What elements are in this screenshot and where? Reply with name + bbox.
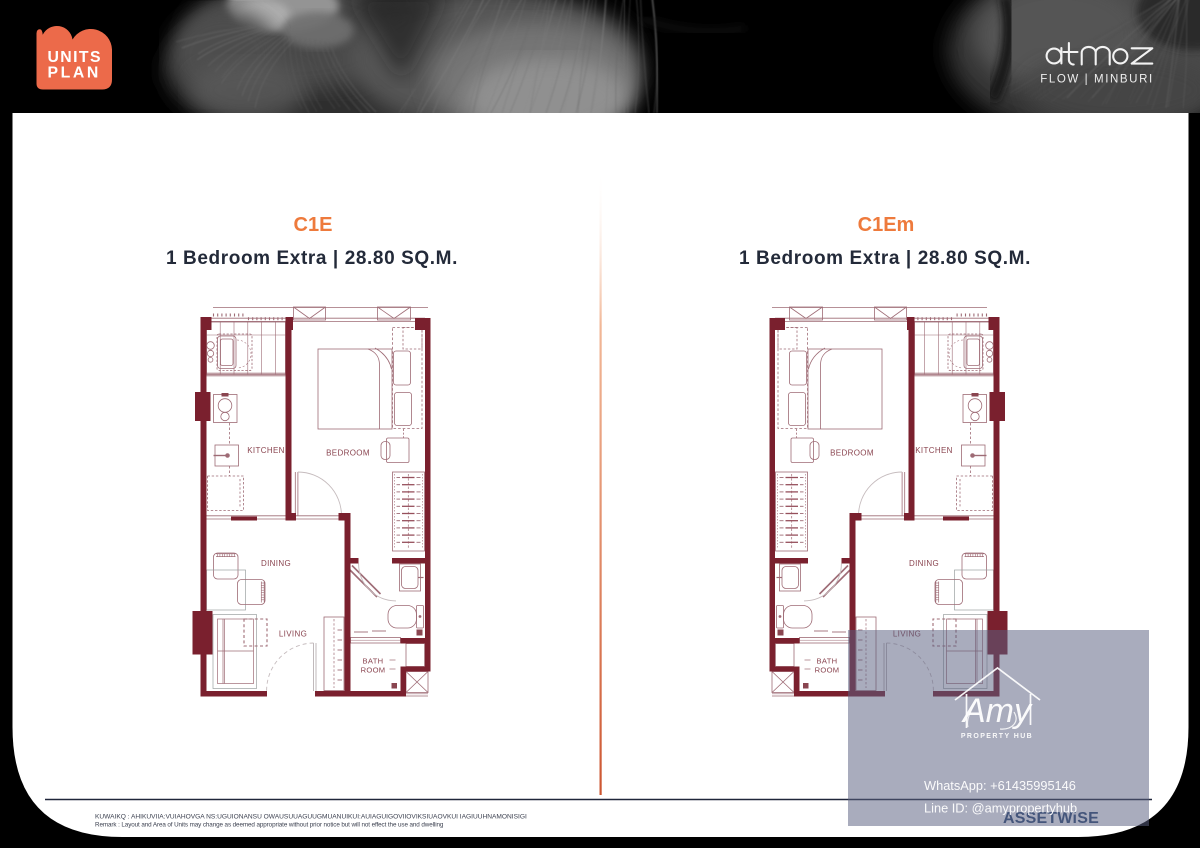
svg-text:BEDROOM: BEDROOM [830, 449, 874, 458]
svg-text:Amy: Amy [961, 692, 1033, 730]
svg-text:KITCHEN: KITCHEN [915, 446, 953, 455]
svg-text:C1E: C1E [294, 214, 333, 236]
svg-text:DINING: DINING [909, 559, 939, 568]
svg-text:C1Em: C1Em [858, 214, 915, 236]
svg-text:DINING: DINING [261, 559, 291, 568]
svg-text:BATH: BATH [817, 657, 838, 666]
svg-text:1 Bedroom Extra | 28.80 SQ.M.: 1 Bedroom Extra | 28.80 SQ.M. [166, 248, 458, 269]
svg-text:BEDROOM: BEDROOM [326, 449, 370, 458]
svg-text:Remark : Layout and Area of Un: Remark : Layout and Area of Units may ch… [95, 822, 444, 829]
svg-text:KUWAIKQ : AHIKUVIIA:VUIAHOVGA: KUWAIKQ : AHIKUVIIA:VUIAHOVGA NS:UGUIONA… [95, 814, 527, 821]
svg-text:BATH: BATH [363, 657, 384, 666]
svg-text:PLAN: PLAN [48, 65, 101, 82]
svg-text:1 Bedroom Extra | 28.80 SQ.M.: 1 Bedroom Extra | 28.80 SQ.M. [739, 248, 1031, 269]
svg-text:ROOM: ROOM [361, 666, 386, 675]
svg-text:LIVING: LIVING [279, 630, 307, 639]
svg-text:KITCHEN: KITCHEN [247, 446, 285, 455]
svg-text:Line ID: @amypropertyhub: Line ID: @amypropertyhub [924, 801, 1077, 816]
svg-text:ROOM: ROOM [815, 666, 840, 675]
svg-text:PROPERTY HUB: PROPERTY HUB [961, 733, 1033, 740]
svg-text:FLOW | MINBURI: FLOW | MINBURI [1040, 74, 1154, 86]
svg-text:WhatsApp: +61435995146: WhatsApp: +61435995146 [924, 778, 1076, 793]
svg-text:UNITS: UNITS [48, 49, 102, 66]
